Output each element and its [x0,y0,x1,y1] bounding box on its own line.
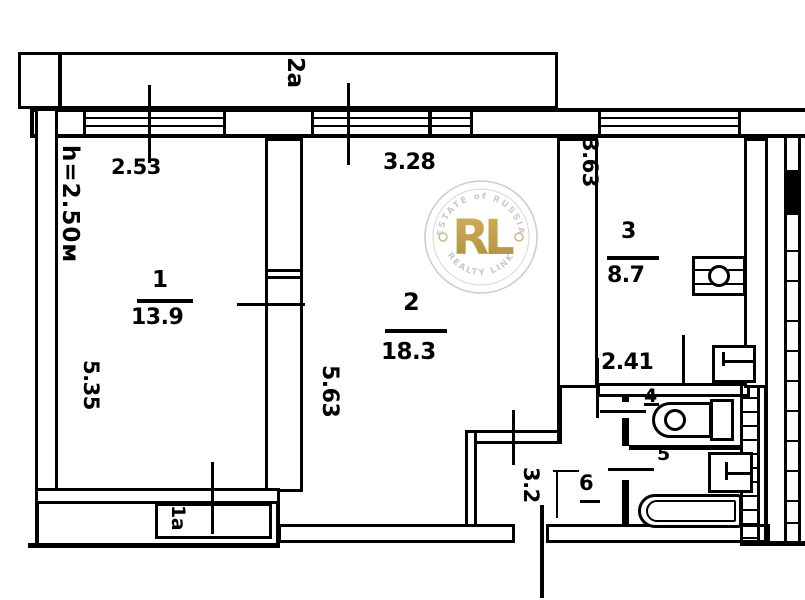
dim-room2-height: 5.63 [318,365,340,417]
window-room2-glass [313,125,472,127]
wall-room1-bottom [35,488,280,504]
window-room2-glass [313,117,472,119]
wall-right-lower [764,388,768,545]
hall-door-swing [553,470,579,472]
dim-room1-height: 5.35 [80,360,101,410]
wall-top-outer [30,108,805,112]
entrance-door-mark [540,505,544,598]
room1-area: 13.9 [131,307,183,329]
wall-room1-room2 [265,138,303,492]
wall-top-inner [30,134,805,138]
neighbour-wall-hatch [784,350,801,352]
balcony-top-label: 2a [283,57,306,88]
window-kitchen-glass [600,125,740,127]
wc-door-leaf [600,410,646,413]
wall-niche-line [265,269,303,272]
room2-underline [385,329,447,333]
vent-shaft-rung [740,537,760,539]
kitchen-number: 3 [621,221,636,243]
hall-number-tick [580,500,600,503]
kitchen-underline [607,256,659,260]
window-room2-jamb [311,110,314,138]
dim-tick [211,462,214,534]
stamp-right-dot-icon [515,233,523,241]
neighbour-wall-hatch [784,440,801,442]
kitchen-area: 8.7 [607,265,644,287]
bath-door-leaf [608,468,654,471]
dim-room1-width: 2.53 [111,157,161,178]
kitchen-door-leaf [682,335,685,385]
wall-hall-wc [622,418,629,446]
neighbour-wall-block [784,170,801,215]
room1-underline [137,299,193,303]
dim-room2-width: 3.28 [383,152,435,174]
window-room1-glass [85,117,225,119]
neighbour-wall-hatch [784,280,801,282]
ceiling-height-label: h=2.50м [58,145,81,263]
dim-tick [512,410,515,465]
window-room2-jamb [470,110,473,138]
wall-kitchen-bottom [597,383,750,397]
window-kitchen-jamb [738,110,741,138]
neighbour-wall-hatch [784,380,801,382]
bath-sink-tap [725,462,728,480]
dim-kitchen-width: 2.41 [601,352,653,374]
vent-shaft-rung [740,495,760,497]
kitchen-sink-tap [722,360,754,363]
window-room1-glass [85,125,225,127]
wall-bottom-left-outer [28,543,280,548]
dim-kitchen-height: 3.63 [579,137,600,187]
wall-nook-left [465,430,477,535]
stamp-left-dot-icon [439,233,447,241]
dim-tick [148,85,151,163]
room1-number: 1 [152,269,168,292]
vent-shaft-rung [740,425,760,427]
hall-door-leaf [556,472,558,518]
window-room1-jamb [223,110,226,138]
neighbour-wall-hatch [784,522,801,524]
vent-shaft-rung [740,439,760,441]
kitchen-sink-tap [722,352,725,366]
stamp-monogram: RL [452,210,514,266]
hall-area: 3.2 [520,467,541,503]
bath-number: 5 [657,445,670,464]
dim-tick [237,303,305,306]
vent-shaft-rung [740,397,760,399]
floor-plan: 2a h=2.50м 2.53 1 13.9 5.35 1a 3.28 2 18… [0,0,805,600]
wall-left [35,108,58,493]
bath-sink-tap [725,472,753,475]
neighbour-wall-hatch [784,470,801,472]
neighbour-wall-hatch [784,250,801,252]
window-kitchen-jamb [598,110,601,138]
bathtub-inner-icon [646,500,736,522]
neighbour-wall-hatch [784,410,801,412]
vent-shaft-rung [740,509,760,511]
vent-shaft-rung [740,523,760,525]
wall-bottom-right [740,541,805,546]
room2-number: 2 [403,290,419,314]
realty-watermark-stamp: ESTATE of RUSSIA REALTY LINK RL [419,175,543,299]
balcony-bottom-label: 1a [168,505,187,530]
vent-shaft-rung [740,411,760,413]
neighbour-wall-hatch [784,500,801,502]
wall-bottom-a [278,524,515,543]
toilet-tank-icon [710,399,734,441]
wall-top-left-cap [30,108,34,138]
window-kitchen-glass [600,117,740,119]
window-room2-jamb [428,110,432,138]
room2-area: 18.3 [381,341,436,364]
wc-number-tick [644,403,659,406]
wall-hall-wc [622,394,629,402]
window-room1-jamb [83,110,86,138]
dim-tick [347,83,350,165]
neighbour-wall-hatch [784,320,801,322]
dim-tick [596,358,599,418]
kitchen-sink-icon [712,345,756,383]
wall-niche-line [265,276,303,279]
toilet-bowl-icon [664,409,686,431]
balcony-2a-left-line [58,55,62,106]
vent-shaft-rail [757,385,760,545]
stove-burner-icon [708,265,730,287]
wall-wc-bath-divider [629,445,742,450]
hall-number: 6 [579,473,593,494]
